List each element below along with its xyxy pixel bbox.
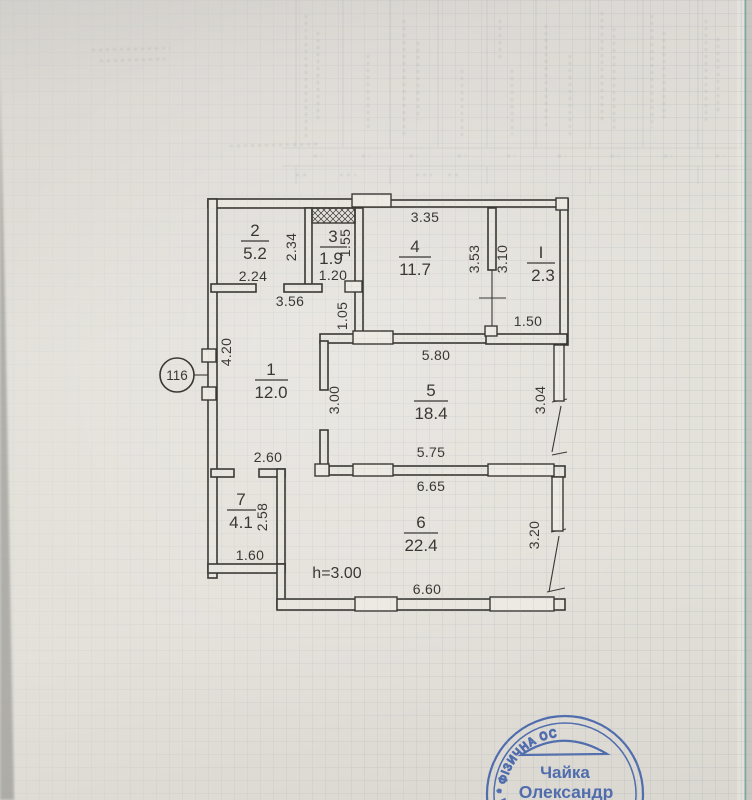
dim-room6-right: 3.20 — [526, 521, 542, 549]
room-label-5: 5 18.4 — [414, 381, 448, 423]
room-area: 11.7 — [399, 260, 431, 279]
dim-room5-right: 3.04 — [532, 386, 548, 414]
room-number: I — [539, 243, 544, 262]
room-area: 2.3 — [531, 266, 555, 285]
dimension-labels: 2.24 2.34 3.56 1.55 1.20 1.05 3.35 3.53 … — [218, 209, 548, 597]
dim-room4-part-left: 3.53 — [466, 245, 482, 273]
room-label-1: 1 12.0 — [254, 360, 288, 402]
room-label-2: 2 5.2 — [241, 221, 269, 263]
dim-hall-top: 3.56 — [276, 293, 304, 309]
dim-room5-left: 3.00 — [326, 386, 342, 414]
apartment-number: 116 — [166, 368, 188, 383]
ceiling-height-note: h=3.00 — [312, 565, 361, 582]
room-label-4: 4 11.7 — [399, 237, 431, 279]
dim-room4-width: 3.35 — [411, 209, 439, 225]
room-area: 12.0 — [254, 383, 287, 402]
dim-room5-top: 5.80 — [422, 347, 450, 363]
left-shadow-edge — [0, 78, 14, 800]
dim-room6-top: 6.65 — [417, 478, 445, 494]
stamp-name-line1: Чайка — [540, 763, 590, 782]
room-number: 5 — [426, 381, 435, 400]
dimension-lines — [194, 270, 567, 592]
showthrough-text — [92, 12, 724, 175]
room-number: 4 — [410, 237, 419, 256]
page-edges — [0, 0, 752, 800]
dim-room4-part-right: 3.10 — [494, 245, 510, 273]
stamp-name-line2: Олександр — [519, 782, 614, 800]
dim-balcony-i-width: 1.50 — [514, 313, 542, 329]
room-number: 6 — [416, 513, 425, 532]
dim-room6-bottom: 6.60 — [413, 581, 441, 597]
room-area: 18.4 — [414, 404, 447, 423]
room-area: 4.1 — [229, 513, 253, 532]
room-number: 1 — [266, 360, 275, 379]
room-label-7: 7 4.1 — [227, 490, 256, 532]
dim-room7-top: 2.60 — [254, 449, 282, 465]
dim-room3-width: 1.20 — [319, 267, 347, 283]
dim-room5-bottom: 5.75 — [417, 444, 445, 460]
room-number: 2 — [250, 221, 259, 240]
page-canvas: 116 1 12.0 2 5.2 3 1.9 4 11.7 — [0, 0, 752, 800]
dim-room7-bottom: 1.60 — [236, 547, 264, 563]
scanned-page: 116 1 12.0 2 5.2 3 1.9 4 11.7 — [0, 0, 752, 800]
room-area: 22.4 — [404, 536, 437, 555]
dim-room3-wall: 1.05 — [334, 302, 350, 330]
vent-shaft-hatch — [312, 208, 355, 223]
dim-room2-height: 2.34 — [283, 233, 299, 261]
dim-room2-width: 2.24 — [239, 268, 267, 284]
floor-plan: 116 1 12.0 2 5.2 3 1.9 4 11.7 — [160, 194, 568, 611]
dim-hall-height: 4.20 — [218, 338, 234, 366]
room-label-I: I 2.3 — [527, 243, 555, 285]
room-number: 7 — [236, 490, 245, 509]
apartment-number-badge: 116 — [160, 358, 194, 392]
room-area: 5.2 — [243, 244, 267, 263]
room-label-6: 6 22.4 — [404, 513, 438, 555]
dim-room3-height: 1.55 — [337, 229, 353, 257]
dim-room7-height: 2.58 — [254, 503, 270, 531]
right-edge-strip — [747, 0, 752, 800]
